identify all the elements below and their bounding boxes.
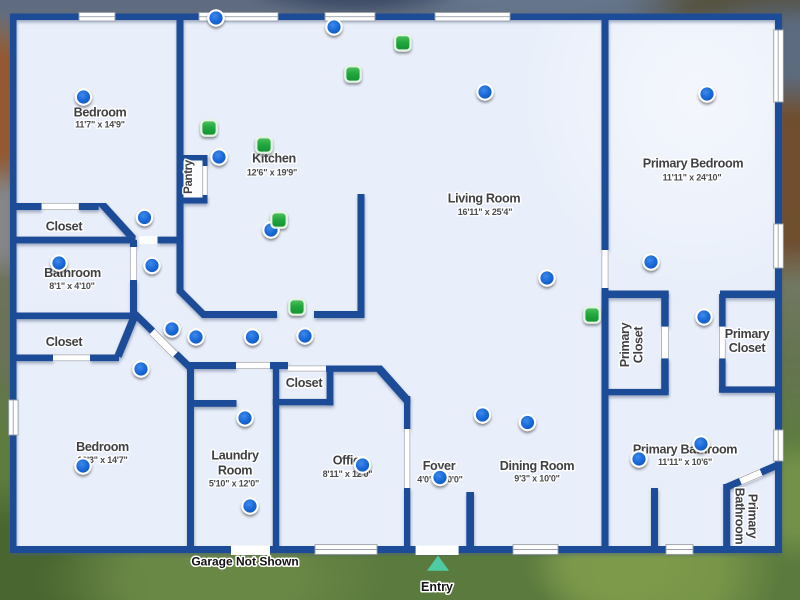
svg-text:11'7" x 14'9": 11'7" x 14'9" — [75, 120, 125, 130]
svg-text:Primary: Primary — [746, 494, 760, 539]
svg-text:Closet: Closet — [46, 335, 84, 349]
svg-text:Entry: Entry — [421, 580, 453, 594]
svg-text:11'11" x 24'10": 11'11" x 24'10" — [663, 173, 722, 183]
svg-text:Primary: Primary — [618, 322, 632, 367]
svg-text:9'3" x 10'0": 9'3" x 10'0" — [514, 474, 559, 484]
svg-text:Bathroom: Bathroom — [733, 488, 747, 545]
svg-text:Closet: Closet — [729, 341, 767, 355]
svg-text:Pantry: Pantry — [183, 159, 195, 194]
svg-text:11'11" x 10'6": 11'11" x 10'6" — [658, 457, 712, 467]
svg-text:12'6" x 19'9": 12'6" x 19'9" — [247, 168, 297, 178]
svg-text:Bedroom: Bedroom — [76, 440, 129, 454]
svg-text:Closet: Closet — [46, 220, 84, 234]
svg-text:Room: Room — [218, 464, 252, 478]
svg-text:Kitchen: Kitchen — [252, 152, 296, 166]
svg-text:8'1" x 4'10": 8'1" x 4'10" — [49, 281, 94, 291]
svg-text:Garage Not Shown: Garage Not Shown — [191, 555, 298, 569]
svg-text:Laundry: Laundry — [211, 449, 259, 463]
svg-text:Living Room: Living Room — [448, 192, 521, 206]
svg-text:Closet: Closet — [632, 326, 646, 364]
svg-text:Closet: Closet — [286, 376, 324, 390]
svg-text:Dining Room: Dining Room — [500, 459, 575, 473]
svg-text:16'11" x 25'4": 16'11" x 25'4" — [458, 207, 513, 217]
svg-text:Primary Bathroom: Primary Bathroom — [633, 443, 737, 457]
svg-text:Primary: Primary — [725, 327, 770, 341]
svg-text:5'10" x 12'0": 5'10" x 12'0" — [209, 479, 259, 489]
svg-text:Bedroom: Bedroom — [74, 106, 127, 120]
svg-text:Primary Bedroom: Primary Bedroom — [643, 157, 744, 171]
